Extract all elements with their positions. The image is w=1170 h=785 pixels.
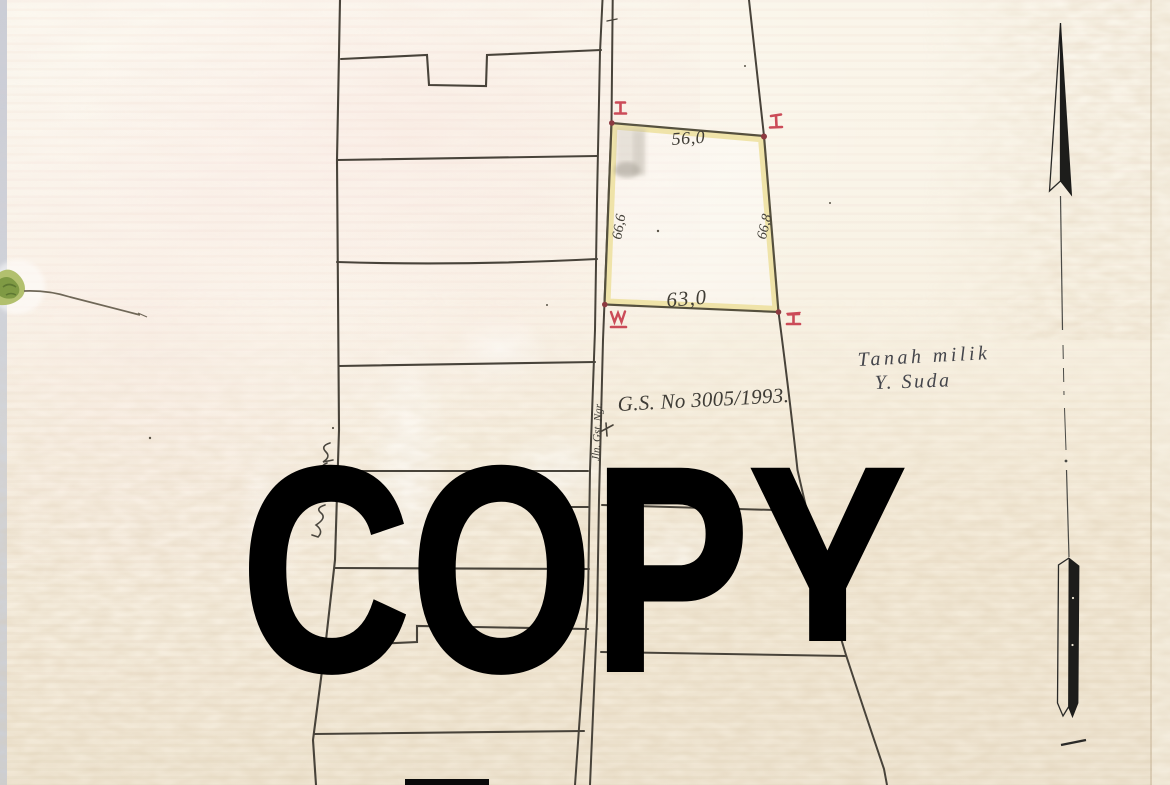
- svg-text:56,0: 56,0: [671, 127, 706, 149]
- svg-text:Y. Suda: Y. Suda: [874, 369, 952, 394]
- svg-text:63,0: 63,0: [665, 285, 708, 312]
